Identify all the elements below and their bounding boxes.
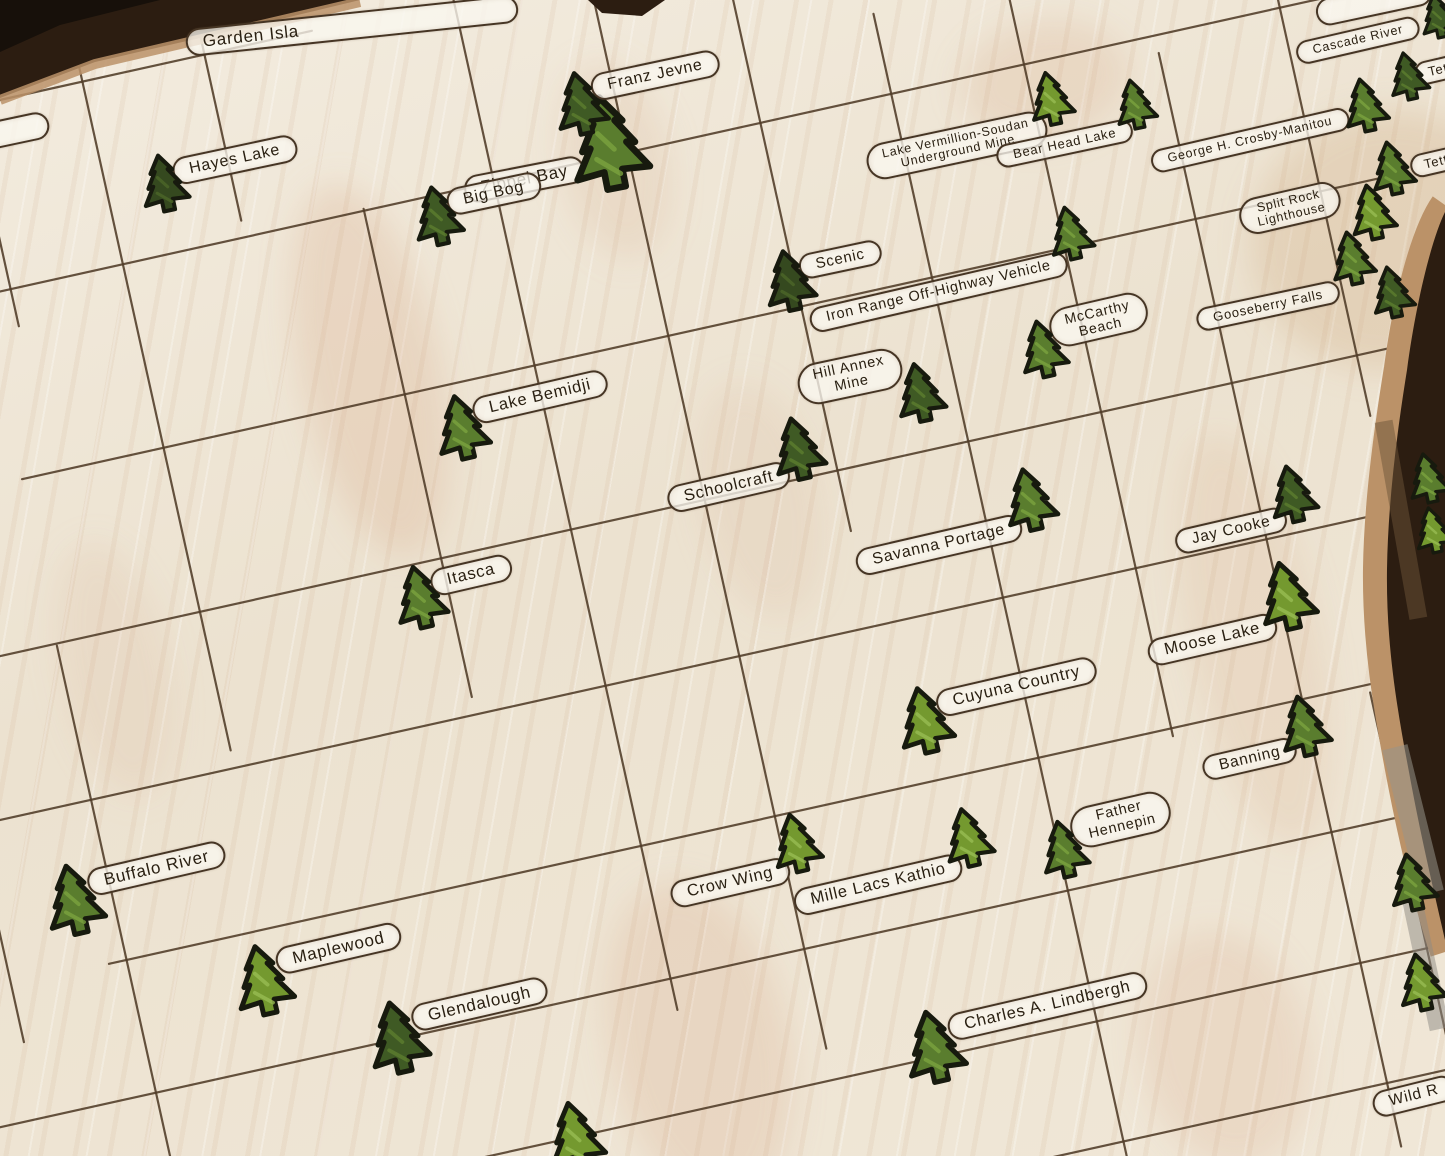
park-label-line: Crow Wing <box>685 864 775 901</box>
park-label: Cuyuna Country <box>933 655 1099 719</box>
park-label-line: Buffalo River <box>102 847 211 889</box>
park-label-line: Wild R <box>1388 1082 1441 1110</box>
park-label: Garden Isla <box>184 0 519 58</box>
park-label-line: Savanna Portage <box>871 521 1007 568</box>
park-label-line: Itasca <box>445 561 497 589</box>
park-marker-lake-bemidji: Lake Bemidji <box>437 347 616 453</box>
park-label: Franz Jevne <box>588 48 722 102</box>
tree-icon <box>1380 846 1444 917</box>
park-label-line: George H. Crosby-Manitou <box>1166 114 1333 165</box>
park-marker-cuyuna-country: Cuyuna Country <box>899 633 1105 747</box>
park-label-line: Maplewood <box>291 929 387 968</box>
park-marker-wild-river: Wild R <box>1370 1073 1445 1119</box>
tree-icon <box>1107 73 1162 135</box>
park-label-line: Schoolcraft <box>682 468 775 506</box>
park-label-line: Banning <box>1217 744 1282 774</box>
park-label: Split RockLighthouse <box>1236 178 1345 237</box>
tree-icon <box>887 355 953 429</box>
park-marker-father-hennepin: FatherHennepin <box>1042 778 1177 866</box>
park-label-line: Bear Head Lake <box>1012 126 1118 162</box>
park-markers-layer: Garden IslaZippel Bay Franz Jevne Hayes … <box>0 0 1445 1156</box>
park-marker-charles-a-lindbergh: Charles A. Lindbergh <box>904 945 1156 1075</box>
park-marker-gooseberry-falls: Gooseberry Falls <box>1194 279 1342 333</box>
park-label-line: Cascade River <box>1311 23 1404 57</box>
park-marker-garden-island: Garden Isla <box>184 0 519 58</box>
park-marker-schoolcraft: Schoolcraft <box>660 434 824 535</box>
park-label: George H. Crosby-Manitou <box>1149 106 1352 174</box>
park-label: Charles A. Lindbergh <box>945 969 1150 1042</box>
tree-icon <box>1400 447 1445 509</box>
wood-map-board: Garden IslaZippel Bay Franz Jevne Hayes … <box>0 0 1445 1156</box>
park-label-line: Franz Jevne <box>606 57 704 94</box>
park-marker-hayes-lake: Hayes Lake <box>145 116 303 208</box>
tree-icon <box>1363 260 1421 325</box>
park-label: Gooseberry Falls <box>1194 279 1342 333</box>
park-label-line: Charles A. Lindbergh <box>963 978 1133 1034</box>
tree-icon <box>1389 946 1445 1017</box>
park-marker-itasca: Itasca <box>397 533 519 624</box>
partial-label-pill <box>0 110 52 157</box>
park-label-line: Glendalough <box>426 983 533 1025</box>
park-marker-moose-lake: Moose Lake <box>1140 582 1316 691</box>
park-label-line: Hayes Lake <box>188 142 282 178</box>
park-marker-hill-annex-mine: Hill AnnexMine <box>792 329 933 419</box>
tree-icon <box>537 1093 613 1156</box>
park-label-line: Lake Bemidji <box>487 376 592 417</box>
park-marker-george-crosby-manitou: George H. Crosby-Manitou <box>1149 106 1352 174</box>
park-label: Lake Bemidji <box>470 368 611 426</box>
park-label: Savanna Portage <box>853 513 1024 578</box>
park-label: Buffalo River <box>84 838 228 897</box>
park-label-line: Scenic <box>814 246 866 272</box>
park-label: Glendalough <box>409 974 551 1033</box>
park-label-line: Mille Lacs Kathio <box>809 860 948 908</box>
partial-label <box>0 110 52 157</box>
park-marker-banning: Banning <box>1195 710 1328 802</box>
park-label-line: Moose Lake <box>1163 620 1262 659</box>
park-marker-split-rock-lighthouse: Split RockLighthouse <box>1236 178 1345 237</box>
park-label-line: Gooseberry Falls <box>1212 288 1324 325</box>
park-label-line: Big Bog <box>462 179 526 209</box>
park-label-line: Jay Cooke <box>1190 513 1272 547</box>
park-label-line: Cuyuna Country <box>951 663 1082 710</box>
tree-icon <box>1407 501 1445 559</box>
tree-icon <box>1381 46 1435 106</box>
park-marker-buffalo-river: Buffalo River <box>46 815 234 929</box>
park-marker-savanna-portage: Savanna Portage <box>849 487 1056 597</box>
park-label-line: Garden Isla <box>202 1 502 51</box>
park-label: Wild R <box>1370 1073 1445 1119</box>
